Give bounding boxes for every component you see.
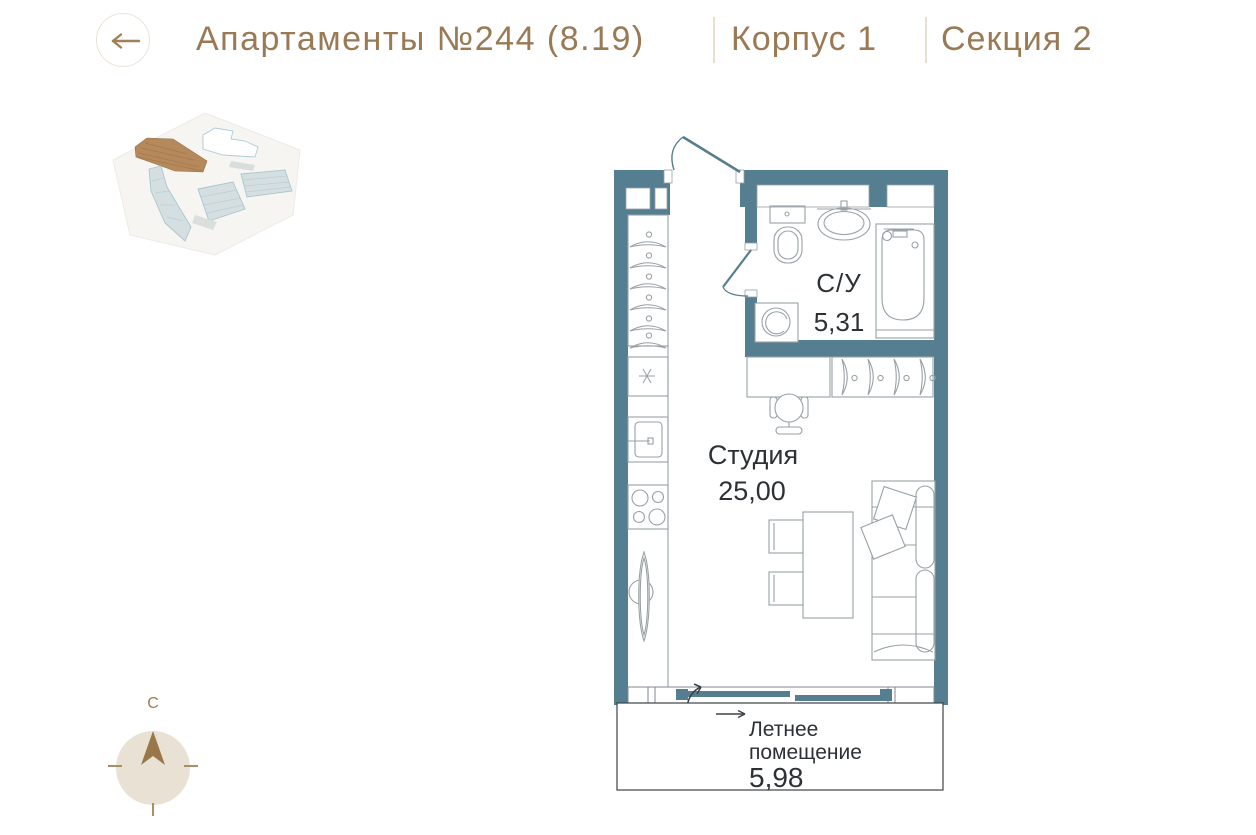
desk — [747, 357, 830, 397]
bathroom-area: 5,31 — [814, 307, 865, 337]
table — [803, 512, 853, 618]
chair — [769, 520, 803, 553]
bathroom-label: С/У — [816, 268, 862, 298]
entrance-door — [664, 137, 744, 183]
summer-room-label-line2: помещение — [749, 741, 862, 764]
section-label: Секция 2 — [941, 20, 1093, 59]
kitchen-sink — [629, 552, 653, 641]
cooktop — [628, 485, 668, 529]
bathtub — [876, 224, 934, 338]
site-minimap[interactable] — [95, 95, 310, 273]
studio-area: 25,00 — [718, 476, 786, 506]
site-plan-icon — [95, 95, 310, 273]
compass: С — [100, 688, 210, 823]
compass-north-label: С — [147, 695, 159, 712]
back-arrow-icon — [97, 14, 151, 68]
apartment-plan-page: Апартаменты №244 (8.19) Корпус 1 Секция … — [0, 0, 1256, 835]
bathroom-door — [723, 243, 757, 297]
studio-label: Студия — [708, 440, 798, 470]
header-divider — [713, 17, 715, 63]
desk-chair — [770, 394, 808, 434]
fridge-snowflake-icon — [639, 369, 655, 383]
wardrobe — [628, 215, 668, 346]
sofa — [861, 481, 935, 660]
summer-room-label-line1: Летнее — [749, 718, 818, 741]
summer-room-area: 5,98 — [749, 762, 804, 793]
building-label: Корпус 1 — [731, 20, 877, 59]
back-button[interactable] — [96, 13, 150, 67]
page-title: Апартаменты №244 (8.19) — [196, 20, 645, 59]
kitchen-counter — [628, 346, 668, 687]
chair — [769, 572, 803, 605]
header-divider — [925, 17, 927, 63]
wall-niches — [626, 185, 934, 209]
floor-plan: С/У 5,31 Студия 25,00 Летнее помещение 5… — [605, 125, 955, 805]
toilet — [770, 206, 805, 263]
washing-machine — [755, 303, 798, 342]
